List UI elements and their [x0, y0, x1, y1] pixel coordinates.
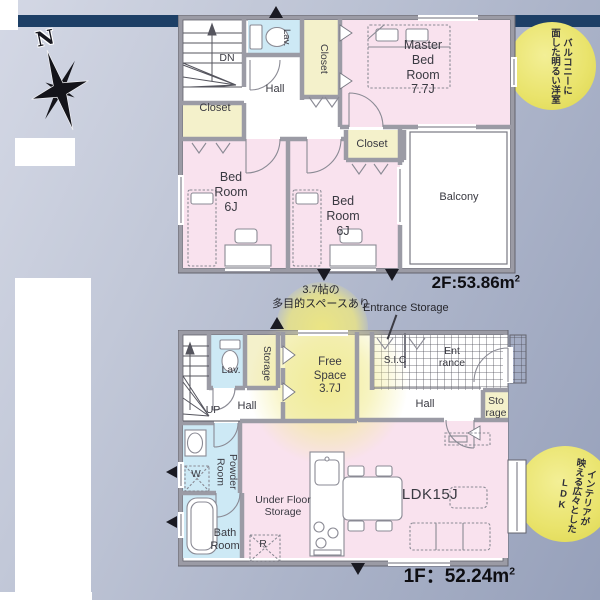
badge-2f-text: バルコニーに 面した明るい洋室 [548, 27, 572, 105]
vent-marker-icon [385, 269, 399, 281]
label-balcony: Balcony [429, 191, 489, 204]
compass-rose-icon [18, 44, 108, 144]
label-entrance: Ent rance [434, 345, 470, 370]
label-closet-left: Closet [187, 102, 243, 115]
vent-marker-icon [351, 563, 365, 575]
label-sic: S.I.C [374, 355, 416, 367]
badge-2f-line1: バルコニーに [560, 27, 572, 105]
label-hall-right: Hall [405, 398, 445, 411]
label-washer: W [185, 469, 207, 481]
scan-artifact-left-column [15, 278, 91, 596]
label-master-bedroom: Master Bed Room 7.7J [394, 38, 452, 97]
label-free-space: Free Space 3.7J [302, 356, 358, 397]
label-master-size: 7.7J [394, 82, 452, 97]
label-closet-top: Closet [314, 33, 330, 85]
label-bedroom-2: Bed Room 6J [319, 194, 367, 238]
label-1f-area: 1F：52.24m2 [355, 566, 515, 588]
label-storage-1f: Storage [257, 338, 272, 390]
label-closet-mid: Closet [346, 138, 398, 151]
label-lav-1f: Lav. [214, 364, 248, 376]
label-bedroom-1-size: 6J [207, 200, 255, 215]
label-free-space-size: 3.7J [302, 383, 358, 397]
vent-marker-icon [270, 317, 284, 329]
label-powder-room: Powder Room [213, 450, 239, 494]
label-ldk: LDK15J [398, 486, 462, 504]
label-bedroom-1: Bed Room 6J [207, 170, 255, 214]
label-up: UP [199, 404, 227, 416]
label-bedroom-2-size: 6J [319, 224, 367, 239]
label-storage-small: Sto rage [481, 395, 511, 420]
label-bath-room: Bath Room [203, 527, 247, 553]
label-2f-area: 2F:53.86m2 [360, 273, 520, 293]
label-lav-2f: Lav. [277, 20, 292, 56]
label-dn: DN [212, 52, 242, 64]
floor-plan-page: N バルコニーに 面した明るい洋室 インテリアが 映える広々とした LDK [0, 0, 600, 600]
scan-artifact-top-left [0, 0, 18, 30]
vent-marker-icon [166, 466, 177, 478]
vent-marker-icon [269, 6, 283, 18]
scan-artifact-bottom-left [0, 592, 92, 600]
label-hall-left: Hall [227, 400, 267, 413]
label-hall-2f: Hall [253, 83, 297, 96]
badge-1f-text: インテリアが 映える広々とした LDK [551, 450, 599, 540]
vent-marker-icon [166, 516, 177, 528]
callout-entrance-storage: Entrance Storage [363, 302, 475, 316]
label-under-floor-storage: Under Floor Storage [253, 494, 313, 519]
vent-marker-icon [317, 269, 331, 281]
badge-2f-line2: 面した明るい洋室 [548, 27, 560, 105]
label-fridge: R [249, 538, 277, 550]
